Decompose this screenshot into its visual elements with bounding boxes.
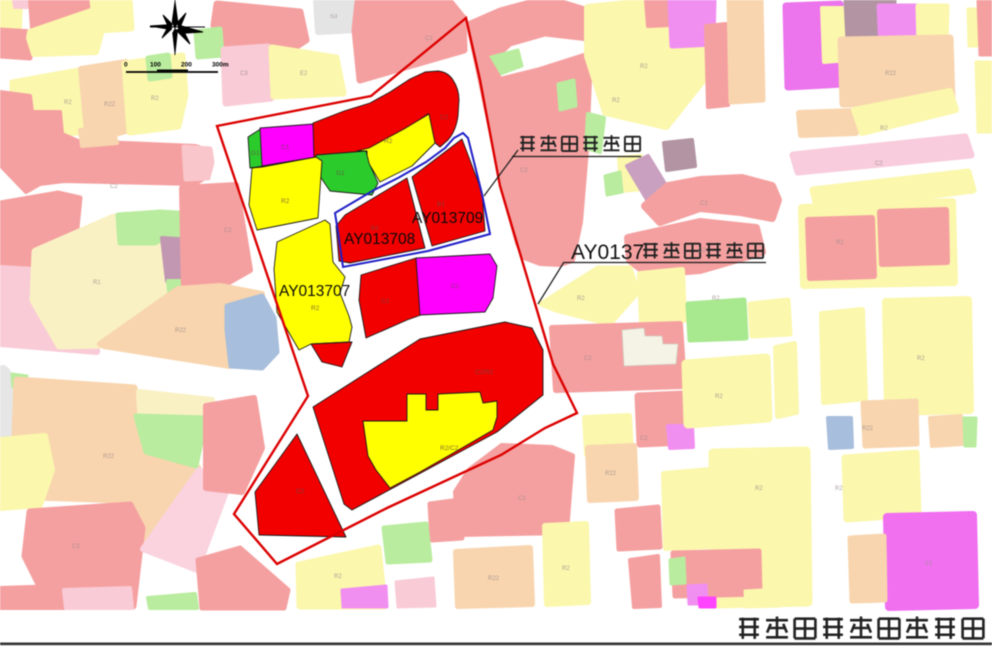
svg-text:R2: R2	[880, 126, 888, 132]
svg-text:R2: R2	[577, 296, 585, 302]
svg-text:C2: C2	[296, 488, 305, 495]
svg-text:B1: B1	[437, 201, 445, 208]
svg-text:R2: R2	[311, 305, 320, 312]
svg-text:AY0137: AY0137	[571, 241, 644, 264]
svg-text:R1: R1	[93, 280, 101, 286]
svg-text:C2: C2	[425, 36, 433, 42]
svg-text:C2: C2	[700, 201, 708, 207]
svg-text:R2: R2	[281, 198, 290, 205]
svg-text:B1: B1	[371, 225, 379, 232]
svg-text:AY013708: AY013708	[344, 231, 415, 248]
svg-text:G1: G1	[336, 170, 345, 177]
svg-text:C2: C2	[584, 356, 592, 362]
svg-text:R2: R2	[640, 64, 648, 70]
svg-text:R2: R2	[836, 240, 844, 246]
svg-text:R2: R2	[917, 356, 925, 362]
svg-text:C2: C2	[381, 298, 390, 305]
svg-text:C2/R2: C2/R2	[475, 369, 494, 376]
svg-text:C2: C2	[640, 436, 648, 442]
svg-text:C1: C1	[281, 144, 290, 151]
svg-text:AY013707: AY013707	[279, 283, 350, 300]
svg-text:G1: G1	[251, 150, 260, 157]
svg-text:C2: C2	[520, 168, 528, 174]
svg-text:R22: R22	[104, 102, 116, 108]
svg-text:R22: R22	[175, 328, 187, 334]
svg-text:AY013709: AY013709	[412, 210, 483, 227]
svg-text:C3: C3	[72, 544, 80, 550]
svg-text:C2: C2	[698, 248, 706, 254]
svg-text:R2: R2	[64, 100, 72, 106]
svg-text:R2: R2	[712, 296, 720, 302]
svg-text:R2: R2	[151, 96, 159, 102]
svg-text:R22: R22	[488, 576, 500, 582]
svg-text:C3: C3	[240, 71, 248, 77]
svg-text:R2: R2	[835, 486, 843, 492]
svg-text:300m: 300m	[212, 62, 229, 69]
svg-text:0: 0	[124, 62, 128, 69]
svg-text:R2: R2	[562, 566, 570, 572]
svg-text:R22: R22	[885, 71, 897, 77]
svg-text:200: 200	[181, 62, 192, 69]
svg-text:C2: C2	[440, 114, 449, 121]
svg-text:R2: R2	[612, 98, 620, 104]
svg-text:R22: R22	[103, 454, 115, 460]
svg-text:C2: C2	[224, 228, 232, 234]
svg-text:S3: S3	[330, 14, 338, 20]
svg-text:E2: E2	[300, 71, 308, 77]
svg-text:R2/C2: R2/C2	[440, 445, 459, 452]
svg-text:R22: R22	[862, 426, 874, 432]
svg-text:R2: R2	[384, 138, 393, 145]
svg-text:100: 100	[150, 62, 161, 69]
svg-text:R22: R22	[605, 471, 617, 477]
svg-text:C1: C1	[925, 561, 933, 567]
svg-text:R2: R2	[715, 394, 723, 400]
svg-text:R2: R2	[334, 574, 342, 580]
svg-text:C2: C2	[875, 161, 883, 167]
svg-text:C2: C2	[110, 184, 118, 190]
svg-text:R2: R2	[755, 486, 763, 492]
svg-text:C2: C2	[518, 496, 526, 502]
svg-text:C1: C1	[451, 283, 460, 290]
